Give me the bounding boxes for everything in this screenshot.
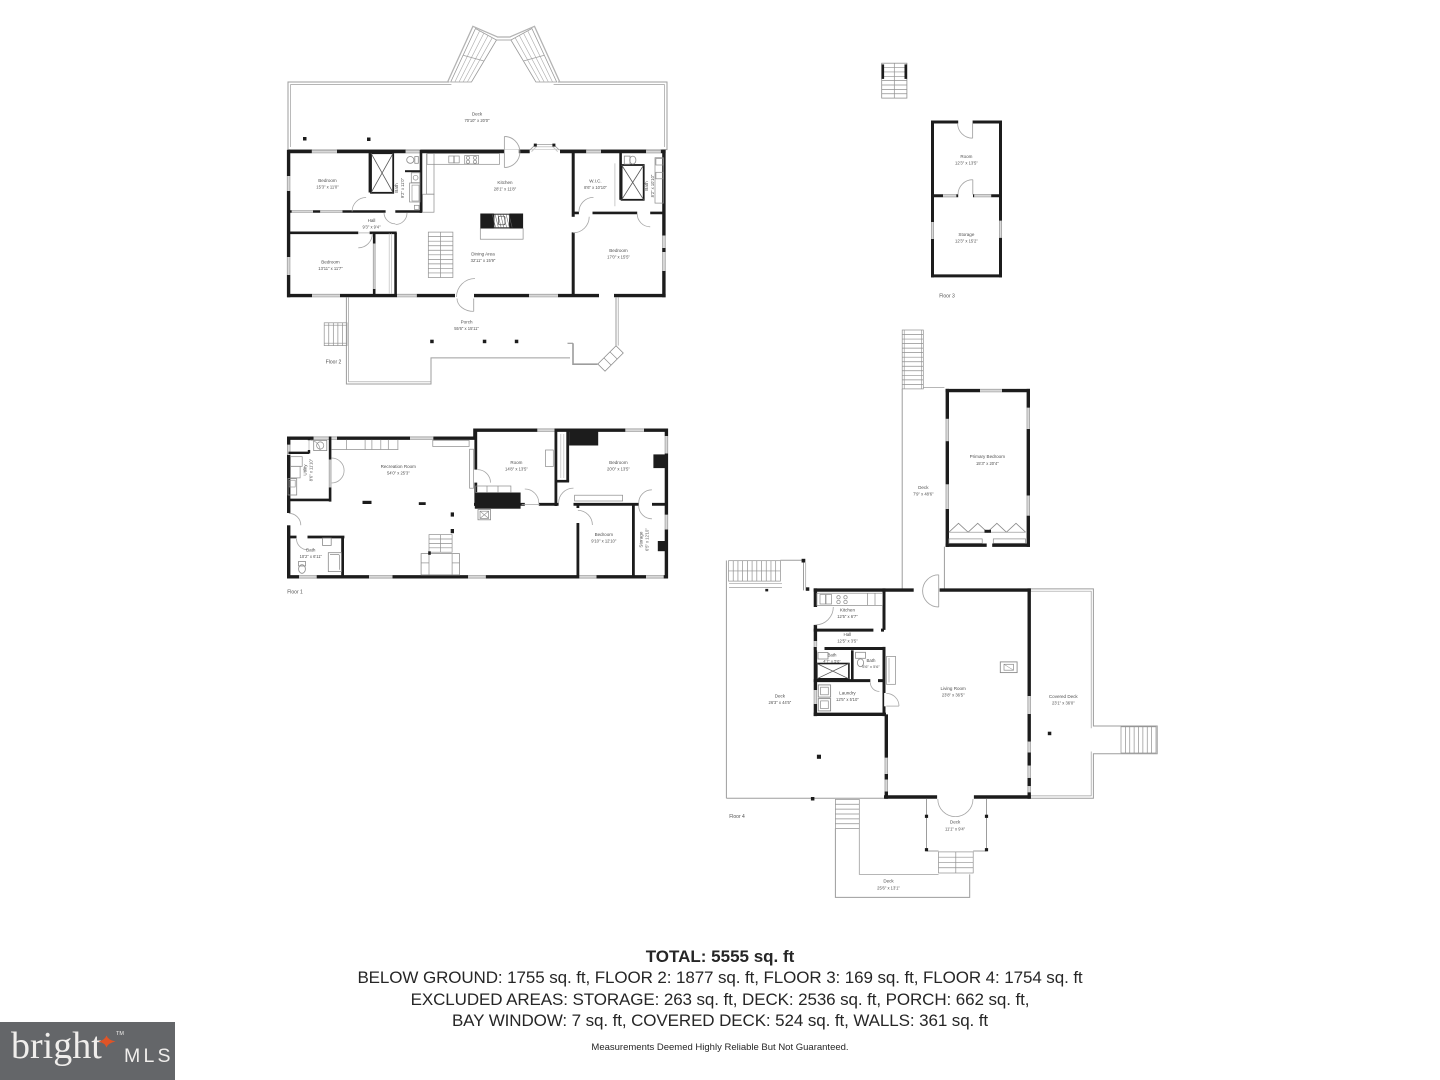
svg-text:Floor 1: Floor 1	[287, 590, 303, 596]
svg-text:12'5" x 6'7": 12'5" x 6'7"	[837, 614, 858, 619]
svg-text:7'9" x 48'6": 7'9" x 48'6"	[913, 492, 934, 497]
svg-text:Bedroom: Bedroom	[321, 260, 340, 265]
svg-text:70'10" x 20'0": 70'10" x 20'0"	[464, 118, 490, 123]
svg-text:Bedroom: Bedroom	[609, 460, 628, 465]
svg-text:20'0" x 13'5": 20'0" x 13'5"	[607, 467, 630, 472]
svg-text:Bath: Bath	[827, 653, 837, 658]
svg-text:Bedroom: Bedroom	[318, 178, 337, 183]
svg-text:Kitchen: Kitchen	[497, 180, 513, 185]
svg-text:Bedroom: Bedroom	[595, 532, 614, 537]
svg-text:14'8" x 13'5": 14'8" x 13'5"	[505, 467, 528, 472]
svg-text:Kitchen: Kitchen	[840, 608, 856, 613]
svg-text:Deck: Deck	[883, 879, 894, 884]
svg-text:Deck: Deck	[472, 112, 483, 117]
svg-text:Hall: Hall	[368, 218, 376, 223]
svg-text:Utility: Utility	[303, 464, 308, 476]
svg-text:Primary Bedroom: Primary Bedroom	[970, 454, 1006, 459]
svg-text:Laundry: Laundry	[839, 691, 856, 696]
svg-text:Dining Area: Dining Area	[471, 252, 495, 257]
svg-text:28'1" x 11'8": 28'1" x 11'8"	[494, 187, 517, 192]
svg-text:10'2" x 6'11": 10'2" x 6'11"	[300, 554, 323, 559]
svg-text:Hall: Hall	[843, 632, 851, 637]
svg-text:Deck: Deck	[918, 485, 929, 490]
svg-text:25'6" x 13'1": 25'6" x 13'1"	[877, 886, 900, 891]
svg-text:12'5" x 5'10": 12'5" x 5'10"	[836, 697, 859, 702]
svg-text:9'10" x 12'10": 9'10" x 12'10"	[591, 539, 617, 544]
svg-text:9'2" x 11'0": 9'2" x 11'0"	[400, 177, 405, 198]
svg-text:Storage: Storage	[639, 531, 644, 547]
svg-text:8'2" x 10'10": 8'2" x 10'10"	[650, 174, 655, 197]
svg-text:9'3" x 9'4": 9'3" x 9'4"	[362, 225, 381, 230]
svg-text:Bath: Bath	[306, 548, 316, 553]
svg-text:13'11" x 11'7": 13'11" x 11'7"	[318, 266, 343, 271]
svg-text:W.I.C.: W.I.C.	[589, 179, 601, 184]
svg-text:Bedroom: Bedroom	[609, 248, 628, 253]
svg-text:Deck: Deck	[950, 820, 961, 825]
svg-text:23'8" x 36'5": 23'8" x 36'5"	[942, 693, 965, 698]
svg-text:Bath: Bath	[394, 183, 399, 193]
svg-text:26'3" x 44'5": 26'3" x 44'5"	[769, 700, 792, 705]
svg-text:Deck: Deck	[775, 694, 786, 699]
svg-text:54'0" x 25'3": 54'0" x 25'3"	[387, 471, 410, 476]
svg-text:23'1" x 36'0": 23'1" x 36'0"	[1052, 701, 1075, 706]
svg-text:Room: Room	[960, 154, 972, 159]
svg-text:Floor 2: Floor 2	[326, 360, 342, 366]
svg-text:Storage: Storage	[958, 232, 974, 237]
svg-text:15'3" x 11'0": 15'3" x 11'0"	[316, 185, 339, 190]
svg-text:Bath: Bath	[866, 658, 876, 663]
svg-text:32'11" x 15'9": 32'11" x 15'9"	[471, 258, 496, 263]
svg-text:Bath: Bath	[644, 181, 649, 191]
svg-text:6'5" x 12'10": 6'5" x 12'10"	[645, 528, 650, 551]
svg-text:11'1" x 9'4": 11'1" x 9'4"	[945, 827, 966, 832]
svg-text:Room: Room	[510, 460, 522, 465]
svg-text:5'6" x 5'6": 5'6" x 5'6"	[862, 664, 880, 669]
svg-text:12'5" x 3'5": 12'5" x 3'5"	[837, 639, 858, 644]
svg-text:55'6" x 15'11": 55'6" x 15'11"	[454, 326, 479, 331]
svg-text:Floor 3: Floor 3	[939, 294, 955, 300]
svg-text:Recreation Room: Recreation Room	[381, 464, 417, 469]
svg-text:12'3" x 15'2": 12'3" x 15'2"	[955, 239, 978, 244]
svg-text:4'7" x 5'6": 4'7" x 5'6"	[823, 659, 841, 664]
svg-text:8'6" x 10'10": 8'6" x 10'10"	[584, 185, 607, 190]
svg-text:Covered Deck: Covered Deck	[1049, 694, 1079, 699]
svg-text:17'0" x 15'5": 17'0" x 15'5"	[607, 255, 630, 260]
svg-text:12'3" x 13'5": 12'3" x 13'5"	[955, 161, 978, 166]
svg-text:Living Room: Living Room	[941, 686, 966, 691]
svg-text:8'6" x 11'10": 8'6" x 11'10"	[309, 458, 314, 481]
svg-text:Porch: Porch	[461, 320, 473, 325]
svg-text:Floor 4: Floor 4	[729, 814, 745, 820]
svg-text:15'3" x 20'4": 15'3" x 20'4"	[976, 461, 999, 466]
